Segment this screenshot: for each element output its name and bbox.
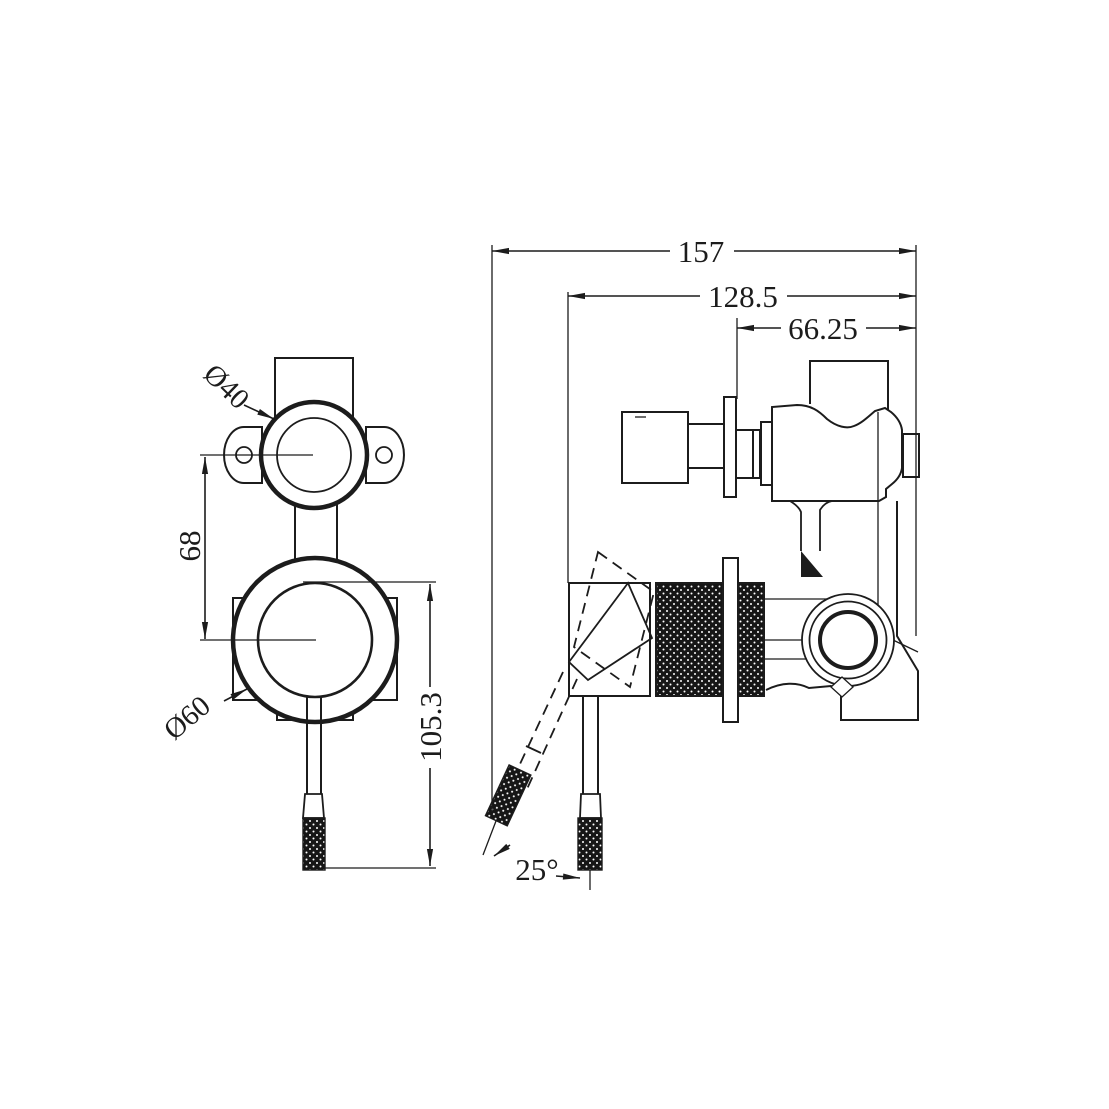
lever-ferrule-side bbox=[580, 794, 601, 818]
boss-outer-circle bbox=[802, 594, 894, 686]
lever-angled bbox=[483, 672, 577, 855]
dim-text-25deg: 25° bbox=[515, 852, 558, 887]
dim-port-centres: 68 bbox=[172, 457, 207, 639]
knurled-grip bbox=[303, 818, 325, 870]
spindle-ring bbox=[753, 430, 760, 478]
handle-hub-rotated bbox=[569, 583, 652, 680]
knurled-sleeve bbox=[656, 583, 764, 696]
lever-ferrule bbox=[303, 794, 324, 818]
ferrule-tick bbox=[526, 746, 541, 753]
body-step-ring bbox=[761, 422, 772, 485]
dim-text-105-3: 105.3 bbox=[413, 692, 448, 762]
inlet-port-boss bbox=[764, 594, 894, 697]
spindle bbox=[736, 430, 753, 478]
diverter-knob-assembly bbox=[622, 397, 772, 497]
diverter-knob bbox=[622, 412, 688, 483]
top-outlet-pipe-side bbox=[810, 361, 888, 410]
wall-flange-lower bbox=[723, 558, 738, 722]
angled-centerline bbox=[483, 821, 496, 855]
side-view bbox=[483, 361, 919, 890]
dim-text-d60: Ø60 bbox=[158, 690, 217, 747]
drawing-sheet: 157 128.5 66.25 68 105.3 Ø40 bbox=[0, 0, 1109, 1109]
body-outline bbox=[772, 405, 902, 501]
handle-plate-rotated-dashed bbox=[574, 552, 654, 687]
ear-right bbox=[366, 427, 404, 483]
lever-stem-side bbox=[583, 697, 598, 794]
wall-flange-upper bbox=[724, 397, 736, 497]
diverter-neck bbox=[790, 501, 832, 551]
diverter-indicator-triangle bbox=[801, 551, 823, 577]
dim-text-128-5: 128.5 bbox=[708, 279, 778, 314]
dim-diverter-diameter: Ø40 bbox=[197, 358, 274, 419]
drawing-canvas: 157 128.5 66.25 68 105.3 Ø40 bbox=[0, 0, 1109, 1109]
handle-plate-side bbox=[569, 583, 650, 696]
front-view bbox=[200, 358, 404, 870]
body-underside bbox=[766, 684, 841, 691]
dim-lever-angle: 25° bbox=[494, 845, 580, 887]
lever-vertical bbox=[578, 697, 602, 890]
dim-text-66-25: 66.25 bbox=[788, 311, 858, 346]
dim-text-157: 157 bbox=[678, 234, 725, 269]
knob-shaft bbox=[688, 424, 724, 468]
knurled-grip-side bbox=[578, 818, 602, 870]
dim-wall-to-outlet: 66.25 bbox=[737, 311, 916, 399]
dim-text-68: 68 bbox=[172, 531, 207, 562]
